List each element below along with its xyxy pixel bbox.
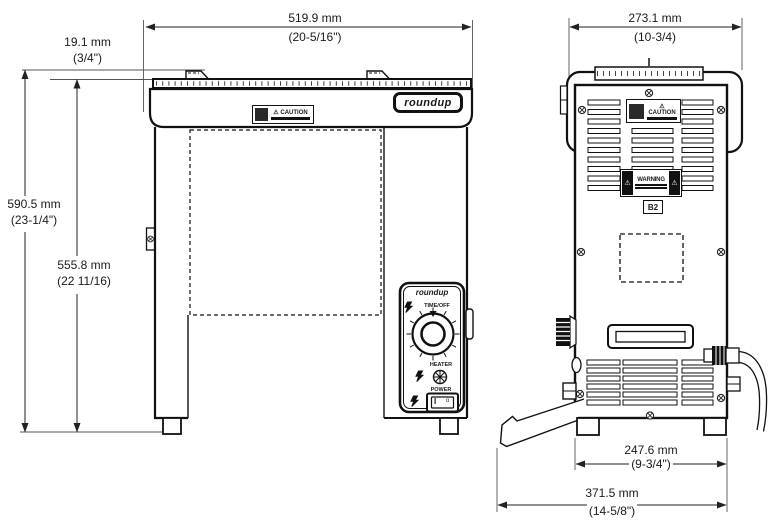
dimensional-drawing: 519.9 mm (20-5/16") 19.1 mm (3/4") 590.5… [0,0,776,525]
foot-depth-in: (9-3/4") [601,457,701,471]
screw [645,89,652,96]
screw [576,390,583,397]
heater-label: HEATER [421,362,461,368]
warning-word: WARNING [637,177,665,183]
foot-depth-mm: 247.6 mm [601,443,701,457]
screw [577,248,584,255]
cord-gland-nut [726,348,739,363]
tray-lip-height-in: (3/4") [45,51,130,65]
side-bumper [572,358,581,373]
caution-word: CAUTION [648,110,675,116]
screw [717,394,724,401]
hot-surface-icon [255,108,268,121]
screw [646,412,653,419]
overall-height-mm: 590.5 mm [2,197,66,211]
timer-knob-side-profile[interactable] [556,316,576,348]
overall-depth-in: (14-5/8") [562,504,662,518]
caution-word: CAUTION [280,110,307,116]
tray-lip-height-mm: 19.1 mm [45,35,130,49]
warning-triangle-icon: ⚠ [669,171,680,195]
left-column-outline [155,127,188,418]
switch-off-mark: o [446,398,449,404]
side-width-in: (10-3/4) [605,30,705,44]
overall-height-in: (23-1/4") [2,213,66,227]
warning-microtext-bar [635,187,666,189]
model-code-tag: B2 [643,200,663,214]
caution-microtext-bar [271,117,310,120]
power-cord-inner [739,363,760,431]
brand-badge: roundup [393,92,463,113]
warning-microtext-bar [635,184,666,186]
timer-label: TIME/OFF [415,303,459,309]
caution-text: ⚠ CAUTION [646,103,678,116]
cord-bracket [704,349,713,362]
front-right-foot [440,418,458,434]
right-side-knob-profile [466,309,473,339]
front-left-foot [163,418,181,434]
power-label: POWER [421,387,461,393]
caution-text: ⚠ CAUTION [273,109,307,116]
screw [717,248,724,255]
overall-depth-in-text: (14-5/8") [587,504,637,518]
tray-support-right [367,71,390,79]
overall-depth-mm: 371.5 mm [562,486,662,500]
overall-width-in: (20-5/16") [265,30,365,44]
body-height-in: (22 11/16) [49,274,119,288]
caution-microtext-bar [647,117,678,120]
tray-support-left [186,71,209,79]
side-front-foot [577,418,599,435]
side-slot-opening [608,325,693,348]
toast-chamber-hidden-outline [190,130,381,315]
side-rear-foot [704,418,726,435]
panel-brand-logo: roundup [403,288,461,297]
caution-triangle-icon: ⚠ [273,110,278,116]
warning-triangle-icon: ⚠ [622,171,633,195]
front-caution-label: ⚠ CAUTION [252,105,314,124]
screw [717,106,724,113]
front-view [147,71,474,434]
side-width-mm: 273.1 mm [605,11,705,25]
screw [578,106,585,113]
side-caution-label: ⚠ CAUTION [626,99,681,123]
hot-surface-icon [629,104,644,119]
switch-on-mark: I [434,397,436,406]
body-height-mm: 555.8 mm [49,258,119,272]
overall-width-mm: 519.9 mm [265,11,365,25]
foot-depth-in-text: (9-3/4") [629,457,673,471]
warning-label: ⚠ WARNING ⚠ [620,169,682,197]
left-fitting-screw [148,236,154,242]
discharge-chute [501,399,585,447]
handle-grip-strip [595,67,703,80]
